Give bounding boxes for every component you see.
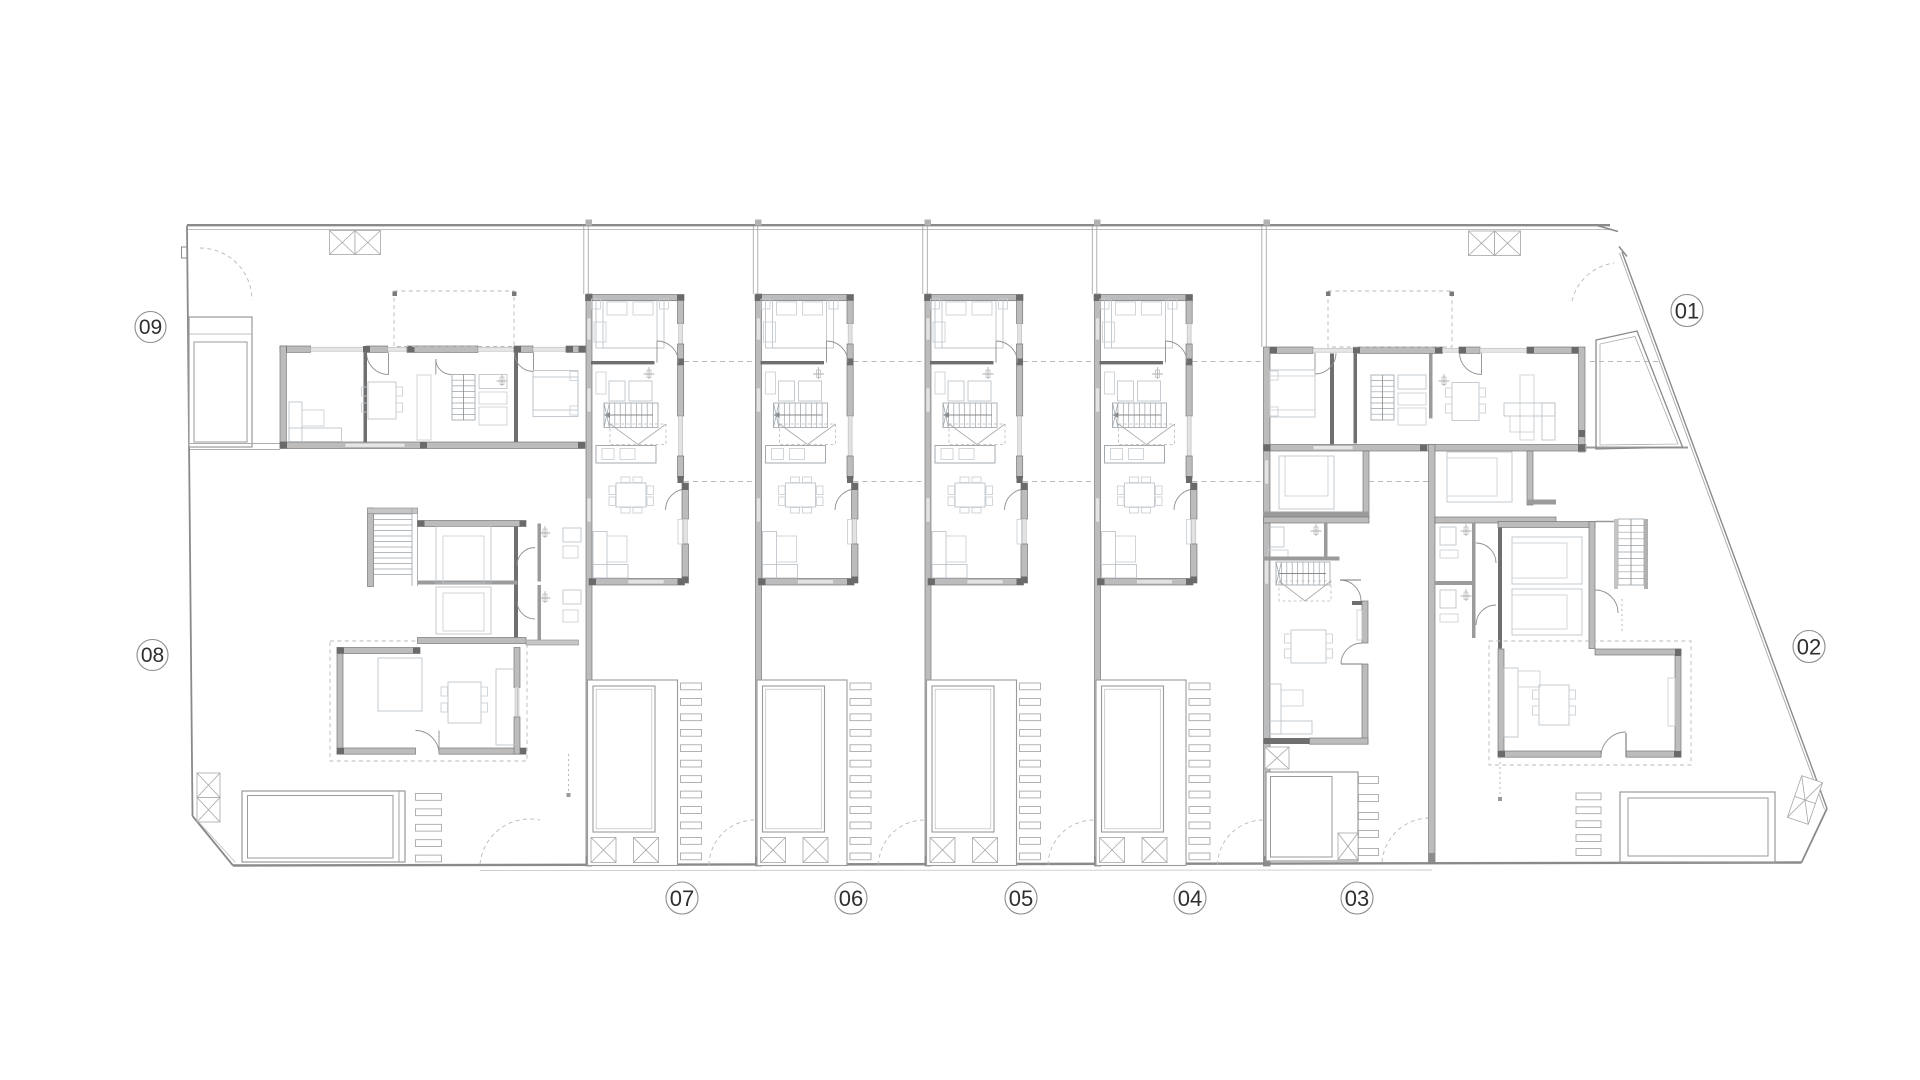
svg-text:09: 09 [139,316,162,339]
svg-text:05: 05 [1009,886,1033,911]
svg-text:04: 04 [1178,886,1202,911]
svg-text:06: 06 [839,886,863,911]
svg-text:01: 01 [1675,299,1699,324]
svg-text:02: 02 [1797,635,1821,660]
svg-text:07: 07 [670,886,694,911]
svg-text:03: 03 [1345,886,1369,911]
svg-text:08: 08 [141,644,164,667]
